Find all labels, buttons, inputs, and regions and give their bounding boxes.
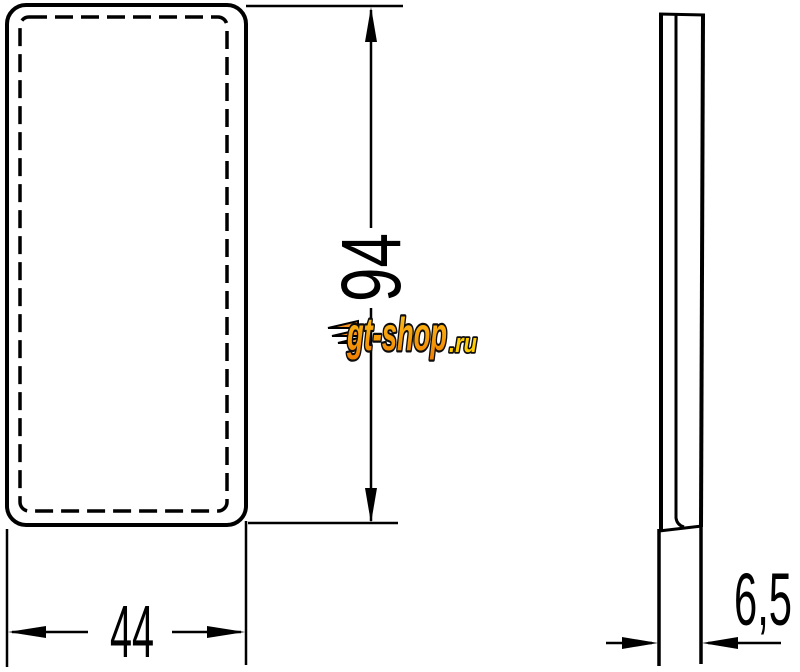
height-dimension: 94 <box>246 6 418 523</box>
side-view <box>659 13 705 666</box>
arrow-up-icon <box>365 7 377 42</box>
width-dimension-value: 44 <box>110 590 154 672</box>
reflector-dimension-drawing: 94 44 6,5 gt-shop <box>0 0 800 672</box>
side-view-top-edge <box>659 14 705 15</box>
arrow-right-icon <box>207 626 245 638</box>
height-dimension-value: 94 <box>324 233 418 302</box>
front-view <box>7 5 246 525</box>
watermark-suffix: .ru <box>449 328 477 358</box>
technical-drawing-page: 94 44 6,5 gt-shop <box>0 0 800 672</box>
arrow-right-icon <box>622 637 658 649</box>
watermark-text: gt-shop <box>346 308 447 360</box>
side-view-right-edge-upper <box>701 15 703 527</box>
arrow-left-icon <box>702 637 738 649</box>
arrow-down-icon <box>365 488 377 523</box>
arrow-left-icon <box>8 626 46 638</box>
side-view-inner-line <box>676 14 684 527</box>
front-view-outer-contour <box>7 5 246 525</box>
depth-dimension-value: 6,5 <box>734 558 792 641</box>
front-view-hidden-contour <box>20 17 227 511</box>
depth-dimension: 6,5 <box>606 558 792 649</box>
width-dimension: 44 <box>7 521 246 672</box>
watermark: gt-shop .ru <box>328 308 477 360</box>
